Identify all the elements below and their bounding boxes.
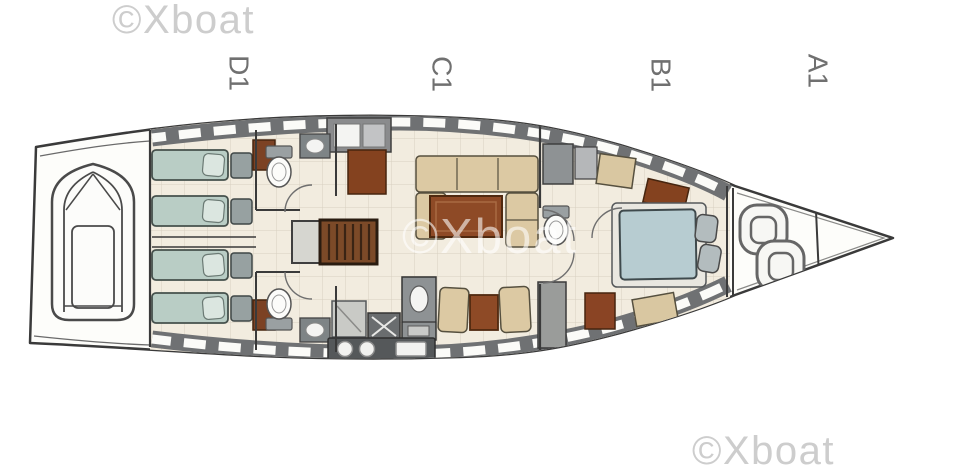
engine-box <box>292 221 320 263</box>
tender-dinghy-icon <box>52 164 134 320</box>
salon-cabinet <box>348 150 386 194</box>
watermark-bottom-right: ©Xboat <box>692 429 835 473</box>
boat-layout-drawing: ©Xboat ©Xboat ©Xboat D1 C1 B1 A1 <box>0 0 960 474</box>
section-label-b1: B1 <box>646 58 677 92</box>
section-label-c1: C1 <box>427 56 458 92</box>
owner-double-berth <box>612 203 722 287</box>
watermark-top-left: ©Xboat <box>112 0 255 42</box>
companionway-stairs-icon <box>320 220 377 264</box>
section-label-d1: D1 <box>224 55 255 91</box>
watermark-center: ©Xboat <box>402 210 578 264</box>
section-label-a1: A1 <box>803 54 834 88</box>
yacht-deck-plan-screenshot: ©Xboat ©Xboat ©Xboat D1 C1 B1 A1 <box>0 0 960 474</box>
